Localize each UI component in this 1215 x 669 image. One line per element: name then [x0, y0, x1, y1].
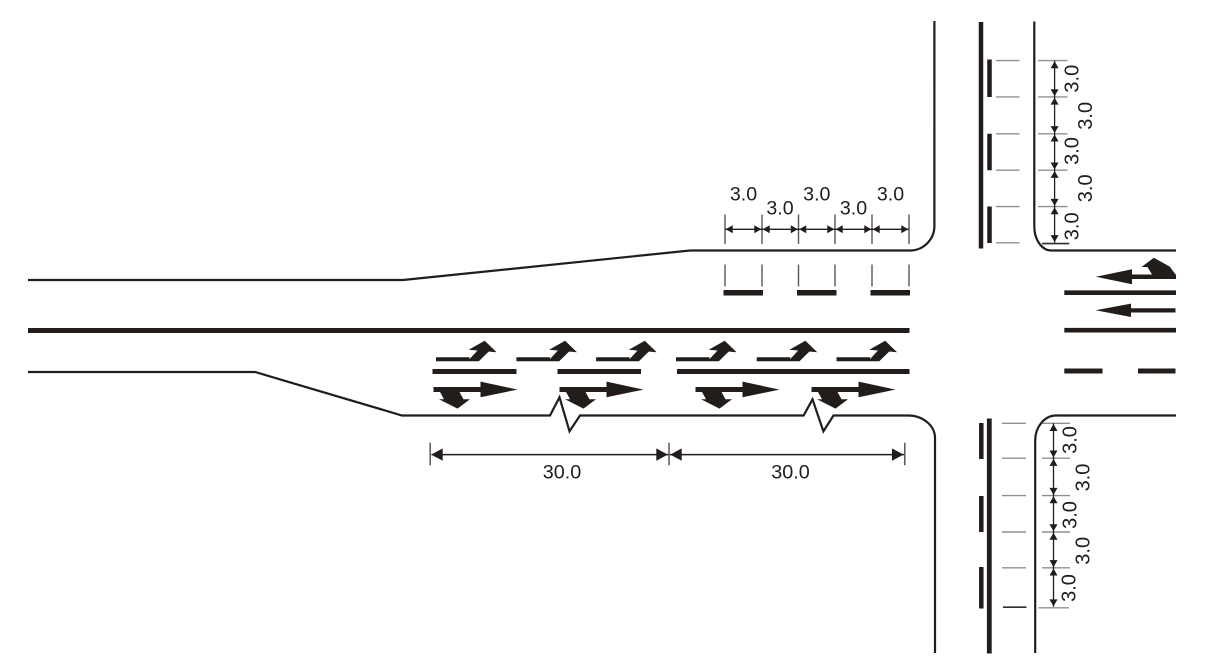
svg-text:3.0: 3.0	[1061, 212, 1083, 240]
svg-text:3.0: 3.0	[766, 198, 793, 220]
svg-text:3.0: 3.0	[1073, 464, 1095, 492]
svg-text:3.0: 3.0	[1058, 574, 1080, 602]
svg-text:3.0: 3.0	[1075, 102, 1097, 130]
svg-text:3.0: 3.0	[840, 198, 867, 220]
svg-text:3.0: 3.0	[730, 183, 757, 205]
svg-text:3.0: 3.0	[1061, 137, 1083, 165]
svg-text:3.0: 3.0	[1072, 537, 1094, 565]
svg-text:3.0: 3.0	[1075, 174, 1097, 202]
svg-text:3.0: 3.0	[1059, 501, 1081, 529]
svg-text:30.0: 30.0	[543, 461, 582, 483]
svg-text:3.0: 3.0	[877, 183, 904, 205]
svg-text:3.0: 3.0	[1059, 426, 1081, 454]
svg-text:30.0: 30.0	[771, 461, 810, 483]
svg-text:3.0: 3.0	[1061, 65, 1083, 93]
svg-text:3.0: 3.0	[803, 183, 830, 205]
